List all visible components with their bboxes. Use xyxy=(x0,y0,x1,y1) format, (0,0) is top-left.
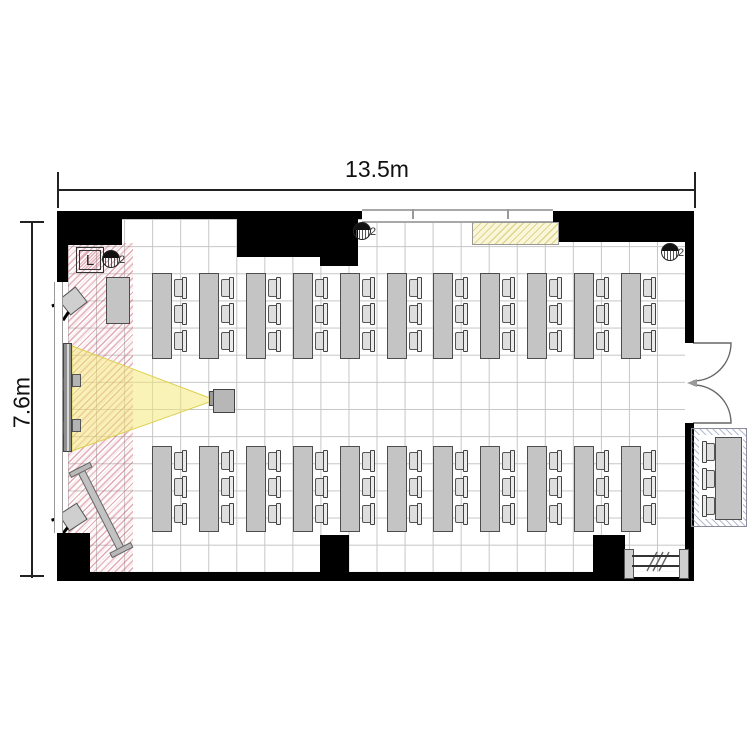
student-table xyxy=(293,273,313,359)
chair-back xyxy=(182,303,187,325)
student-chair xyxy=(361,450,375,470)
student-table xyxy=(433,446,453,532)
student-chair xyxy=(501,450,515,470)
chair-back xyxy=(182,476,187,498)
student-chair xyxy=(173,476,187,496)
wall-column-bottom-right xyxy=(593,535,625,573)
student-chair xyxy=(220,503,234,523)
chair-back xyxy=(370,330,375,352)
outside-chair xyxy=(702,468,716,488)
fixture-count-label: 2 xyxy=(370,226,376,238)
fixture-count-label: 2 xyxy=(119,254,125,266)
chair-back xyxy=(370,303,375,325)
student-chair xyxy=(173,450,187,470)
chair-back xyxy=(702,468,707,490)
window-mullion xyxy=(507,209,509,219)
chair-back xyxy=(510,450,515,472)
student-table xyxy=(152,446,172,532)
height-dimension-tick-top xyxy=(20,221,44,223)
chair-back xyxy=(604,450,609,472)
chair-back xyxy=(651,330,656,352)
chair-back xyxy=(370,450,375,472)
student-chair xyxy=(267,277,281,297)
student-chair xyxy=(173,303,187,323)
student-chair xyxy=(595,277,609,297)
projector xyxy=(213,389,235,413)
student-table xyxy=(199,446,219,532)
student-chair xyxy=(408,330,422,350)
student-table xyxy=(433,273,453,359)
wall-left-upper xyxy=(57,211,68,282)
width-dimension-tick-left xyxy=(57,172,59,208)
chair-back xyxy=(557,277,562,299)
student-chair xyxy=(501,303,515,323)
wall-bottom xyxy=(57,572,625,581)
chair-back xyxy=(463,503,468,525)
fixture-circle-icon xyxy=(353,222,371,240)
student-table xyxy=(246,273,266,359)
student-chair xyxy=(314,277,328,297)
wall-right-upper xyxy=(685,211,694,343)
chair-back xyxy=(417,330,422,352)
fixture-count-label: 2 xyxy=(678,247,684,259)
height-dimension-tick-bottom xyxy=(20,575,44,577)
chair-back xyxy=(182,277,187,299)
chair-back xyxy=(510,277,515,299)
student-table xyxy=(387,273,407,359)
chair-back xyxy=(510,330,515,352)
student-chair xyxy=(408,503,422,523)
chair-back xyxy=(276,303,281,325)
chair-back xyxy=(463,450,468,472)
ceiling-fixture-icon: 2 xyxy=(661,243,687,261)
student-chair xyxy=(642,303,656,323)
chair-back xyxy=(463,330,468,352)
chair-back xyxy=(276,476,281,498)
student-chair xyxy=(454,476,468,496)
chair-back xyxy=(463,303,468,325)
student-table xyxy=(621,446,641,532)
chair-back xyxy=(702,441,707,463)
student-chair xyxy=(173,503,187,523)
chair-back xyxy=(276,503,281,525)
chair-back xyxy=(276,330,281,352)
student-chair xyxy=(361,303,375,323)
chair-back xyxy=(229,277,234,299)
chair-back xyxy=(557,503,562,525)
student-table xyxy=(574,446,594,532)
student-chair xyxy=(314,303,328,323)
student-chair xyxy=(595,450,609,470)
student-chair xyxy=(548,277,562,297)
width-dimension-tick-right xyxy=(694,172,696,208)
student-chair xyxy=(454,450,468,470)
chair-back xyxy=(604,503,609,525)
top-window xyxy=(362,209,553,223)
student-chair xyxy=(642,503,656,523)
chair-back xyxy=(229,503,234,525)
student-table xyxy=(340,273,360,359)
chair-back xyxy=(323,277,328,299)
chair-back xyxy=(229,476,234,498)
chair-back xyxy=(557,476,562,498)
chair-back xyxy=(370,476,375,498)
outside-chair xyxy=(702,495,716,515)
chair-back xyxy=(651,503,656,525)
student-chair xyxy=(548,503,562,523)
height-dimension-line xyxy=(31,222,33,578)
fixture-circle-icon xyxy=(661,243,679,261)
student-chair xyxy=(314,330,328,350)
outside-chair xyxy=(702,441,716,461)
student-table xyxy=(293,446,313,532)
chair-back xyxy=(182,450,187,472)
student-chair xyxy=(314,476,328,496)
student-chair xyxy=(454,277,468,297)
student-table xyxy=(527,446,547,532)
chair-back xyxy=(463,277,468,299)
student-chair xyxy=(408,476,422,496)
student-chair xyxy=(267,503,281,523)
wall-column-bottom-middle xyxy=(320,535,349,573)
chair-back xyxy=(557,450,562,472)
chair-back xyxy=(323,303,328,325)
chair-back xyxy=(276,277,281,299)
student-table xyxy=(199,273,219,359)
chair-back xyxy=(510,303,515,325)
student-chair xyxy=(267,303,281,323)
student-chair xyxy=(314,503,328,523)
student-chair xyxy=(173,277,187,297)
chair-back xyxy=(604,330,609,352)
ceiling-fixture-icon: 2 xyxy=(353,222,379,240)
student-chair xyxy=(408,277,422,297)
student-table xyxy=(340,446,360,532)
student-chair xyxy=(595,503,609,523)
student-table xyxy=(574,273,594,359)
student-chair xyxy=(220,330,234,350)
student-chair xyxy=(501,277,515,297)
projection-screen xyxy=(63,343,72,452)
student-chair xyxy=(454,303,468,323)
chair-back xyxy=(417,303,422,325)
student-chair xyxy=(408,303,422,323)
screen-bracket xyxy=(72,374,81,387)
fixture-circle-icon xyxy=(102,250,120,268)
bottom-window xyxy=(632,555,679,567)
chair-back xyxy=(417,277,422,299)
student-table xyxy=(387,446,407,532)
chair-back xyxy=(182,330,187,352)
chair-back xyxy=(323,503,328,525)
chair-back xyxy=(323,450,328,472)
student-chair xyxy=(595,330,609,350)
chair-back xyxy=(604,476,609,498)
student-table xyxy=(152,273,172,359)
chair-back xyxy=(417,503,422,525)
chair-back xyxy=(370,503,375,525)
chair-back xyxy=(651,277,656,299)
wall-column-top-right xyxy=(553,211,694,242)
wall-bottom-outer-face xyxy=(625,577,687,581)
chair-back xyxy=(323,476,328,498)
chair-back xyxy=(702,495,707,517)
screen-bracket xyxy=(72,419,81,432)
lectern-box: L xyxy=(76,247,104,273)
width-dimension-label: 13.5m xyxy=(58,156,696,183)
student-chair xyxy=(267,476,281,496)
double-door-swing xyxy=(693,343,731,423)
lectern-label: L xyxy=(79,250,101,270)
student-chair xyxy=(267,330,281,350)
chair-back xyxy=(651,303,656,325)
chair-back xyxy=(417,476,422,498)
chair-back xyxy=(417,450,422,472)
chair-back xyxy=(463,476,468,498)
student-chair xyxy=(220,450,234,470)
student-table xyxy=(621,273,641,359)
student-chair xyxy=(642,330,656,350)
chair-back xyxy=(370,277,375,299)
student-chair xyxy=(548,303,562,323)
student-chair xyxy=(454,503,468,523)
student-chair xyxy=(501,476,515,496)
student-chair xyxy=(501,503,515,523)
outside-table xyxy=(715,437,742,520)
ceiling-fixture-icon: 2 xyxy=(102,250,128,268)
student-table xyxy=(480,446,500,532)
chair-back xyxy=(510,503,515,525)
student-chair xyxy=(642,450,656,470)
student-chair xyxy=(361,330,375,350)
wall-column-bottom-left xyxy=(57,533,90,581)
student-table xyxy=(480,273,500,359)
student-chair xyxy=(173,330,187,350)
chair-back xyxy=(651,450,656,472)
wall-column-top-middle xyxy=(237,211,320,257)
width-dimension-line xyxy=(58,189,696,191)
window-post xyxy=(679,549,689,579)
student-chair xyxy=(220,476,234,496)
floor-plan-canvas: 13.5m 7.6m xyxy=(0,0,750,750)
student-chair xyxy=(642,476,656,496)
stage-table xyxy=(106,277,130,324)
student-table xyxy=(246,446,266,532)
student-table xyxy=(527,273,547,359)
student-chair xyxy=(595,476,609,496)
student-chair xyxy=(595,303,609,323)
chair-back xyxy=(604,303,609,325)
student-chair xyxy=(361,277,375,297)
student-chair xyxy=(220,303,234,323)
door-direction-arrow xyxy=(687,379,697,387)
student-chair xyxy=(361,476,375,496)
student-chair xyxy=(548,450,562,470)
student-chair xyxy=(501,330,515,350)
chair-back xyxy=(182,503,187,525)
student-chair xyxy=(267,450,281,470)
student-chair xyxy=(220,277,234,297)
window-mullion xyxy=(412,209,414,219)
chair-back xyxy=(229,303,234,325)
chair-back xyxy=(229,450,234,472)
student-chair xyxy=(548,330,562,350)
student-chair xyxy=(454,330,468,350)
student-chair xyxy=(642,277,656,297)
student-chair xyxy=(548,476,562,496)
chair-back xyxy=(276,450,281,472)
screen-surface xyxy=(67,344,69,451)
student-chair xyxy=(361,503,375,523)
wall-left-thin xyxy=(54,282,63,533)
chair-back xyxy=(604,277,609,299)
student-chair xyxy=(314,450,328,470)
chair-back xyxy=(229,330,234,352)
chair-back xyxy=(651,476,656,498)
chair-back xyxy=(557,330,562,352)
storage-cabinet xyxy=(472,222,559,245)
chair-back xyxy=(510,476,515,498)
student-chair xyxy=(408,450,422,470)
chair-back xyxy=(557,303,562,325)
chair-back xyxy=(323,330,328,352)
